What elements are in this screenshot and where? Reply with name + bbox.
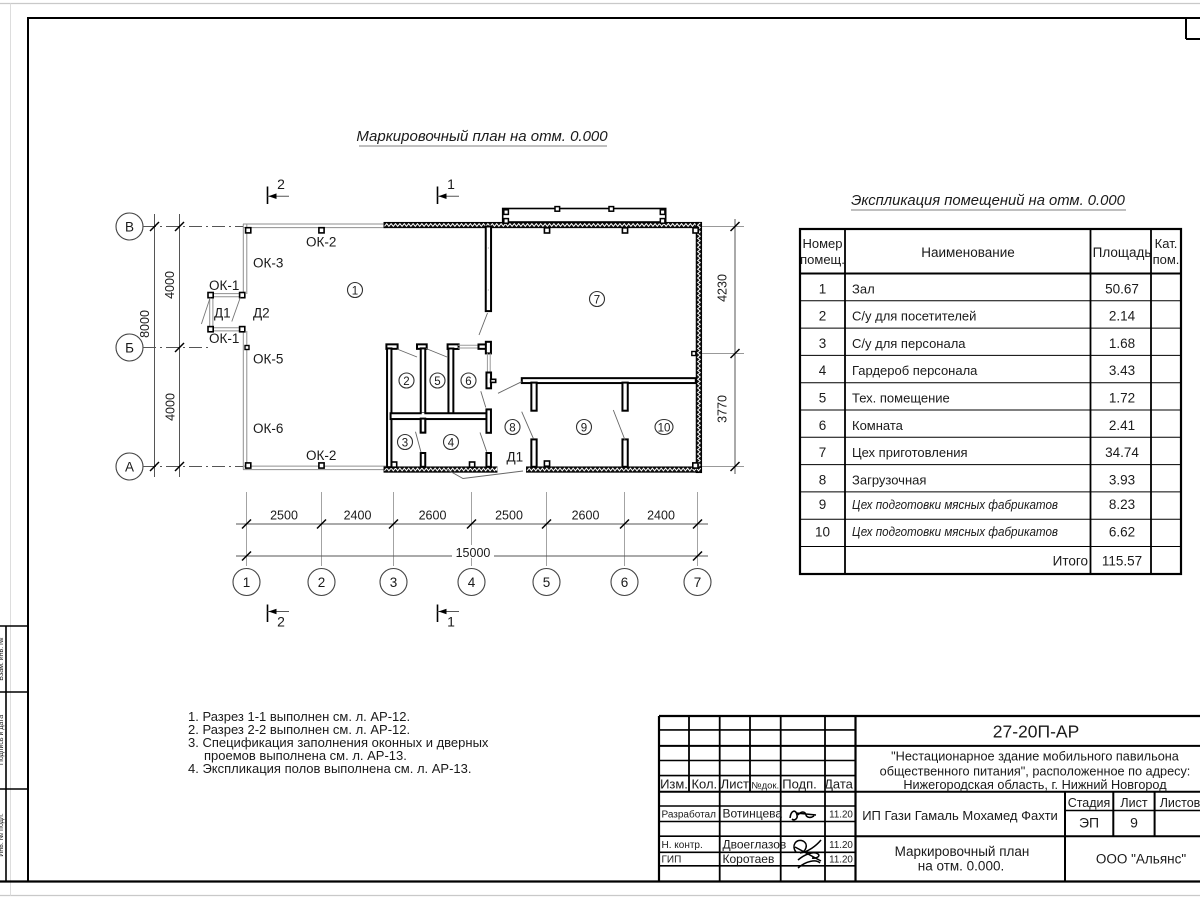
svg-text:2: 2 (819, 309, 827, 324)
svg-text:Площадь: Площадь (1093, 245, 1152, 260)
svg-text:2400: 2400 (344, 509, 372, 523)
svg-text:4000: 4000 (163, 271, 177, 299)
svg-text:Кол.: Кол. (691, 777, 717, 792)
svg-text:3: 3 (402, 437, 408, 449)
svg-text:6: 6 (621, 575, 629, 590)
svg-text:4000: 4000 (164, 393, 178, 421)
svg-text:2400: 2400 (647, 509, 675, 523)
svg-text:ОК-3: ОК-3 (253, 256, 283, 271)
svg-text:ООО "Альянс": ООО "Альянс" (1096, 852, 1186, 867)
svg-text:пом.: пом. (1153, 252, 1180, 267)
svg-text:10: 10 (658, 422, 671, 434)
svg-text:9: 9 (1130, 815, 1138, 831)
svg-text:4: 4 (448, 437, 455, 449)
svg-text:5: 5 (543, 575, 551, 590)
svg-text:ОК-2: ОК-2 (306, 448, 336, 463)
svg-text:Гардероб персонала: Гардероб персонала (852, 363, 978, 378)
svg-text:Взам. инв. №: Взам. инв. № (0, 637, 5, 680)
svg-text:1.72: 1.72 (1109, 391, 1135, 406)
svg-text:ОК-6: ОК-6 (253, 421, 283, 436)
svg-text:7: 7 (594, 294, 600, 306)
svg-text:34.74: 34.74 (1105, 445, 1139, 460)
svg-text:3.93: 3.93 (1109, 472, 1135, 487)
svg-text:Стадия: Стадия (1068, 796, 1111, 810)
svg-text:11.20: 11.20 (829, 840, 853, 851)
svg-text:Изм.: Изм. (660, 777, 688, 792)
svg-text:8: 8 (509, 422, 515, 434)
svg-text:1: 1 (352, 285, 358, 297)
svg-text:Загрузочная: Загрузочная (852, 472, 926, 487)
svg-text:3: 3 (390, 575, 398, 590)
svg-text:общественного питания", распол: общественного питания", расположенное по… (880, 765, 1191, 779)
svg-text:Зал: Зал (852, 281, 875, 296)
svg-text:2.41: 2.41 (1109, 418, 1135, 433)
svg-text:Маркировочный план на отм. 0.0: Маркировочный план на отм. 0.000 (356, 128, 608, 145)
svg-text:15000: 15000 (456, 546, 491, 560)
svg-text:Двоеглазов: Двоеглазов (723, 838, 787, 852)
svg-text:3.43: 3.43 (1109, 363, 1135, 378)
svg-text:9: 9 (581, 422, 587, 434)
svg-text:Маркировочный план: Маркировочный план (895, 844, 1030, 859)
svg-text:Цех подготовки мясных фабрикат: Цех подготовки мясных фабрикатов (852, 497, 1058, 512)
svg-text:3770: 3770 (716, 395, 730, 423)
svg-text:Н. контр.: Н. контр. (662, 840, 703, 851)
svg-text:10: 10 (815, 525, 830, 540)
svg-text:Итого: Итого (1053, 553, 1088, 568)
svg-text:2: 2 (403, 376, 409, 388)
svg-text:1: 1 (243, 575, 251, 590)
svg-text:ОК-1: ОК-1 (209, 278, 239, 293)
svg-text:11.20: 11.20 (829, 809, 853, 820)
svg-text:ОК-5: ОК-5 (253, 352, 283, 367)
svg-text:Д1: Д1 (214, 306, 231, 321)
svg-text:2500: 2500 (270, 509, 298, 523)
svg-text:Лист: Лист (1120, 796, 1147, 810)
svg-text:3: 3 (819, 336, 827, 351)
svg-text:Экспликация помещений на отм.: Экспликация помещений на отм. 0.000 (851, 193, 1125, 209)
svg-text:В: В (125, 220, 134, 235)
svg-text:8: 8 (819, 472, 827, 487)
svg-text:ИП Гази Гамаль Мохамед Фахти: ИП Гази Гамаль Мохамед Фахти (862, 808, 1058, 823)
svg-text:2500: 2500 (495, 509, 523, 523)
svg-text:Цех подготовки мясных фабрикат: Цех подготовки мясных фабрикатов (852, 524, 1058, 539)
svg-text:Д1: Д1 (507, 450, 524, 465)
svg-text:1: 1 (447, 176, 455, 192)
svg-text:6: 6 (465, 376, 471, 388)
svg-text:Тех. помещение: Тех. помещение (852, 391, 950, 406)
svg-text:1.68: 1.68 (1109, 336, 1135, 351)
svg-text:2600: 2600 (419, 509, 447, 523)
svg-text:9: 9 (819, 497, 827, 512)
svg-text:Коротаев: Коротаев (723, 852, 775, 866)
svg-text:1: 1 (447, 614, 455, 630)
svg-text:Комната: Комната (852, 418, 904, 433)
svg-text:Инв. № подл.: Инв. № подл. (0, 813, 5, 857)
svg-text:ГИП: ГИП (662, 854, 682, 865)
svg-text:8.23: 8.23 (1109, 497, 1135, 512)
svg-text:27-20П-АР: 27-20П-АР (993, 722, 1080, 742)
svg-text:С/у для персонала: С/у для персонала (852, 336, 966, 351)
svg-text:2.14: 2.14 (1109, 309, 1136, 324)
svg-text:Разработал: Разработал (662, 808, 717, 820)
svg-text:Нижегородская область, г. Нижн: Нижегородская область, г. Нижний Новгоро… (903, 778, 1167, 792)
svg-text:Подпись и дата: Подпись и дата (0, 715, 5, 765)
svg-text:помещ.: помещ. (800, 252, 845, 267)
svg-text:Лист: Лист (721, 777, 749, 792)
svg-text:2: 2 (277, 614, 285, 630)
svg-text:№док.: №док. (751, 781, 779, 792)
svg-text:4. Экспликация полов выполнена: 4. Экспликация полов выполнена см. л. АР… (188, 761, 472, 776)
svg-text:5: 5 (434, 376, 440, 388)
svg-text:А: А (125, 460, 134, 475)
svg-text:на отм. 0.000.: на отм. 0.000. (918, 859, 1004, 874)
svg-text:ОК-1: ОК-1 (209, 331, 239, 346)
svg-text:2: 2 (277, 176, 285, 192)
svg-text:Вотинцева: Вотинцева (723, 807, 783, 821)
svg-text:8000: 8000 (138, 310, 152, 338)
svg-text:2600: 2600 (572, 509, 600, 523)
svg-text:"Нестационарное здание мобильн: "Нестационарное здание мобильного павиль… (891, 750, 1180, 764)
svg-text:Номер: Номер (802, 236, 842, 251)
svg-text:С/у для посетителей: С/у для посетителей (852, 309, 976, 324)
svg-text:Д2: Д2 (253, 306, 270, 321)
svg-text:Кат.: Кат. (1155, 236, 1178, 251)
svg-text:11.20: 11.20 (829, 854, 853, 865)
svg-text:6: 6 (819, 418, 827, 433)
svg-text:Листов: Листов (1160, 796, 1200, 810)
svg-text:ЭП: ЭП (1079, 815, 1099, 831)
svg-text:Подп.: Подп. (782, 777, 817, 792)
svg-text:ОК-2: ОК-2 (306, 235, 336, 250)
svg-text:4230: 4230 (716, 274, 730, 302)
svg-text:Наименование: Наименование (921, 245, 1015, 260)
svg-text:1: 1 (819, 281, 827, 296)
svg-text:50.67: 50.67 (1105, 281, 1139, 296)
svg-text:Цех приготовления: Цех приготовления (852, 445, 968, 460)
svg-text:4: 4 (819, 363, 827, 378)
svg-text:4: 4 (468, 575, 476, 590)
svg-text:5: 5 (819, 391, 827, 406)
svg-text:115.57: 115.57 (1102, 553, 1142, 568)
svg-text:Дата: Дата (824, 777, 854, 792)
svg-text:Б: Б (125, 341, 134, 356)
svg-text:7: 7 (819, 445, 827, 460)
svg-text:6.62: 6.62 (1109, 525, 1135, 540)
svg-text:2: 2 (318, 575, 326, 590)
svg-text:7: 7 (694, 575, 702, 590)
